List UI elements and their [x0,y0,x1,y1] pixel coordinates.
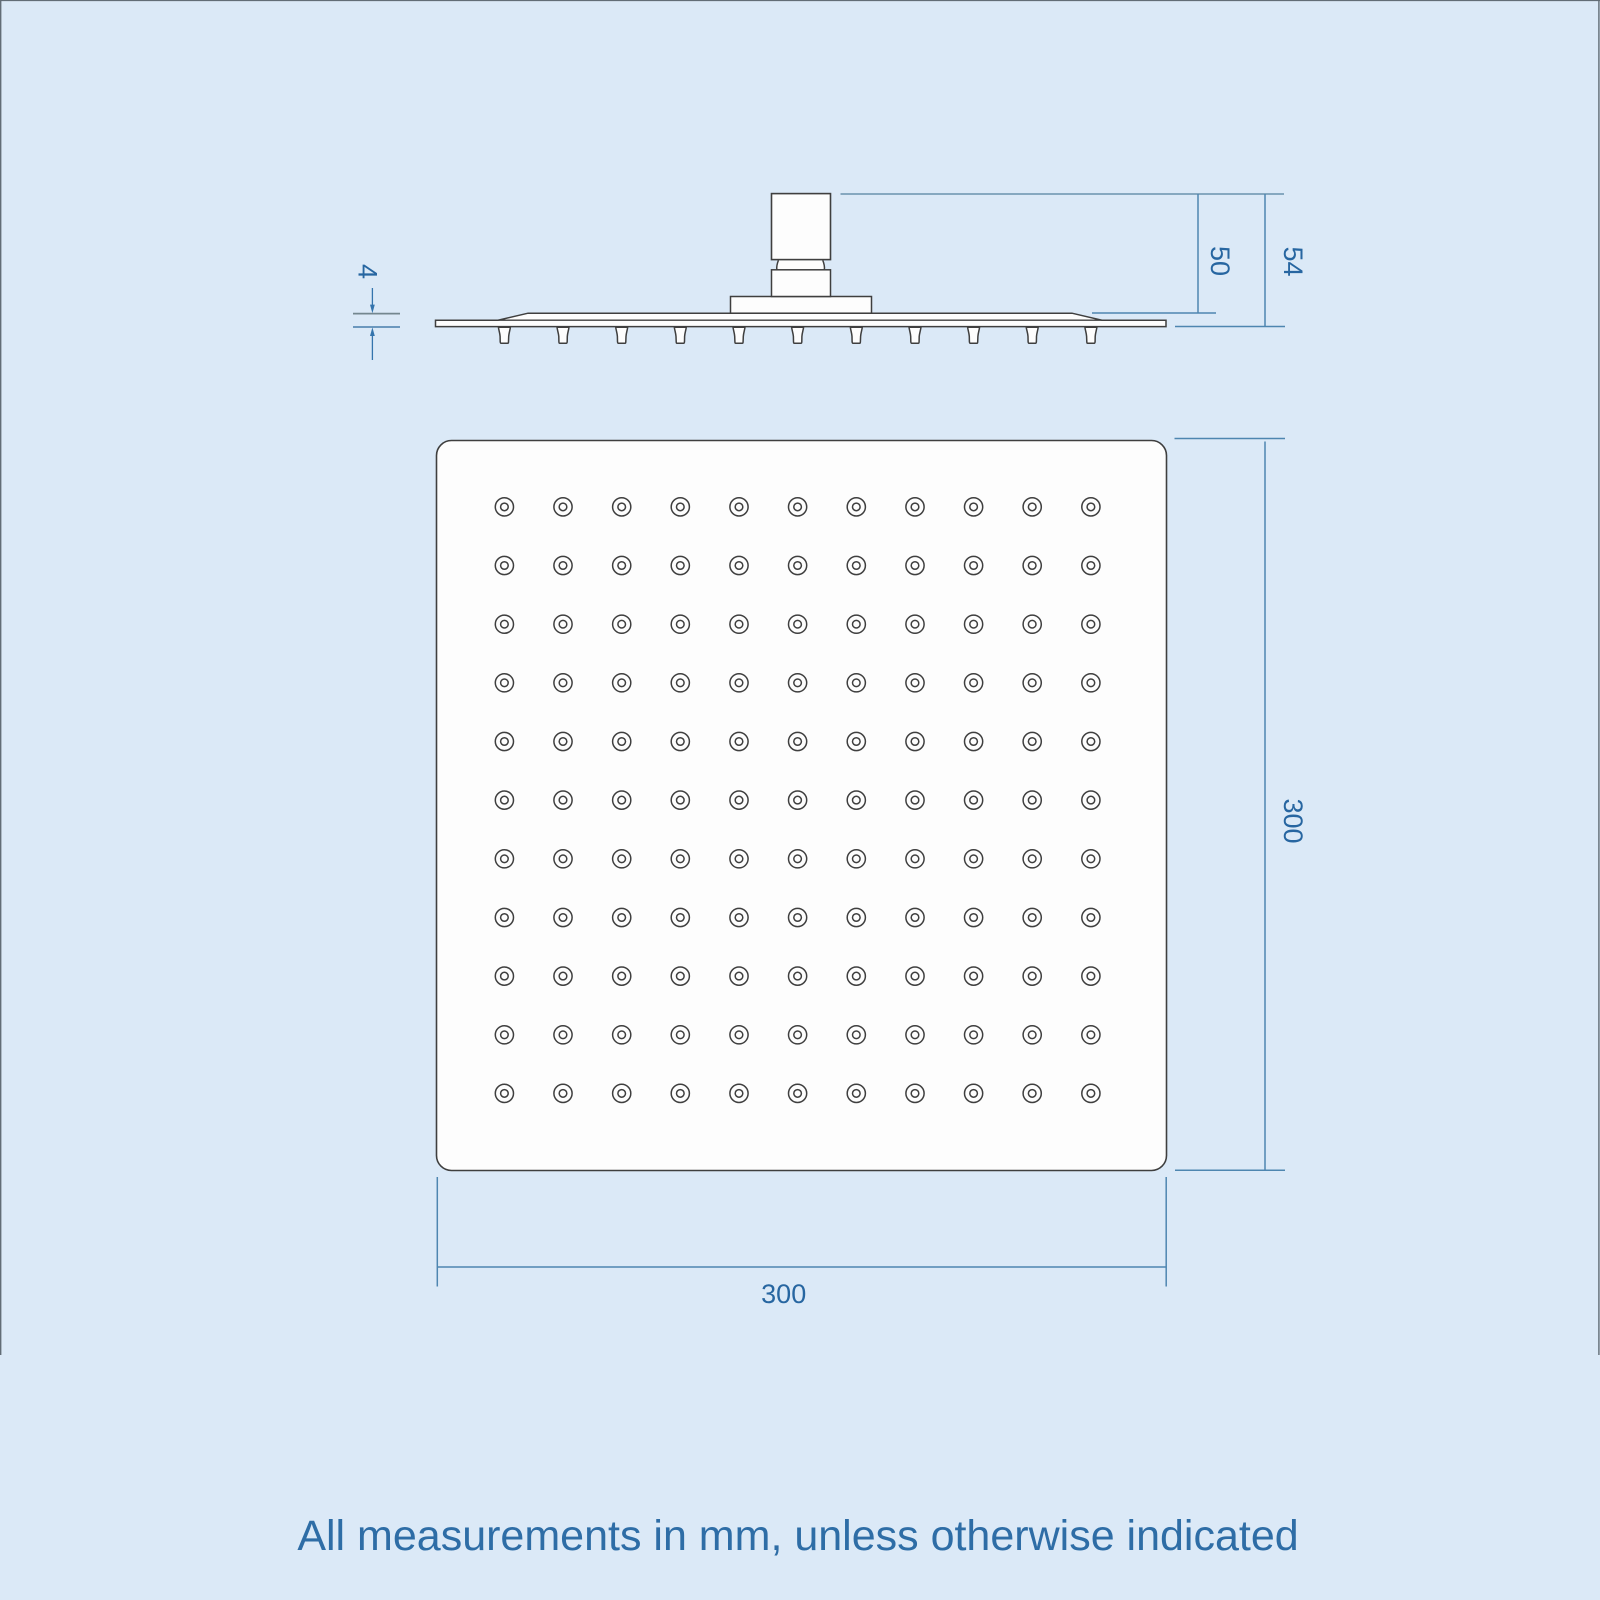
svg-text:300: 300 [761,1279,806,1309]
svg-text:50: 50 [1205,246,1235,276]
svg-text:All measurements in mm, unless: All measurements in mm, unless otherwise… [297,1512,1298,1560]
svg-text:4: 4 [353,264,383,279]
svg-text:54: 54 [1278,246,1308,276]
svg-text:300: 300 [1278,798,1308,843]
